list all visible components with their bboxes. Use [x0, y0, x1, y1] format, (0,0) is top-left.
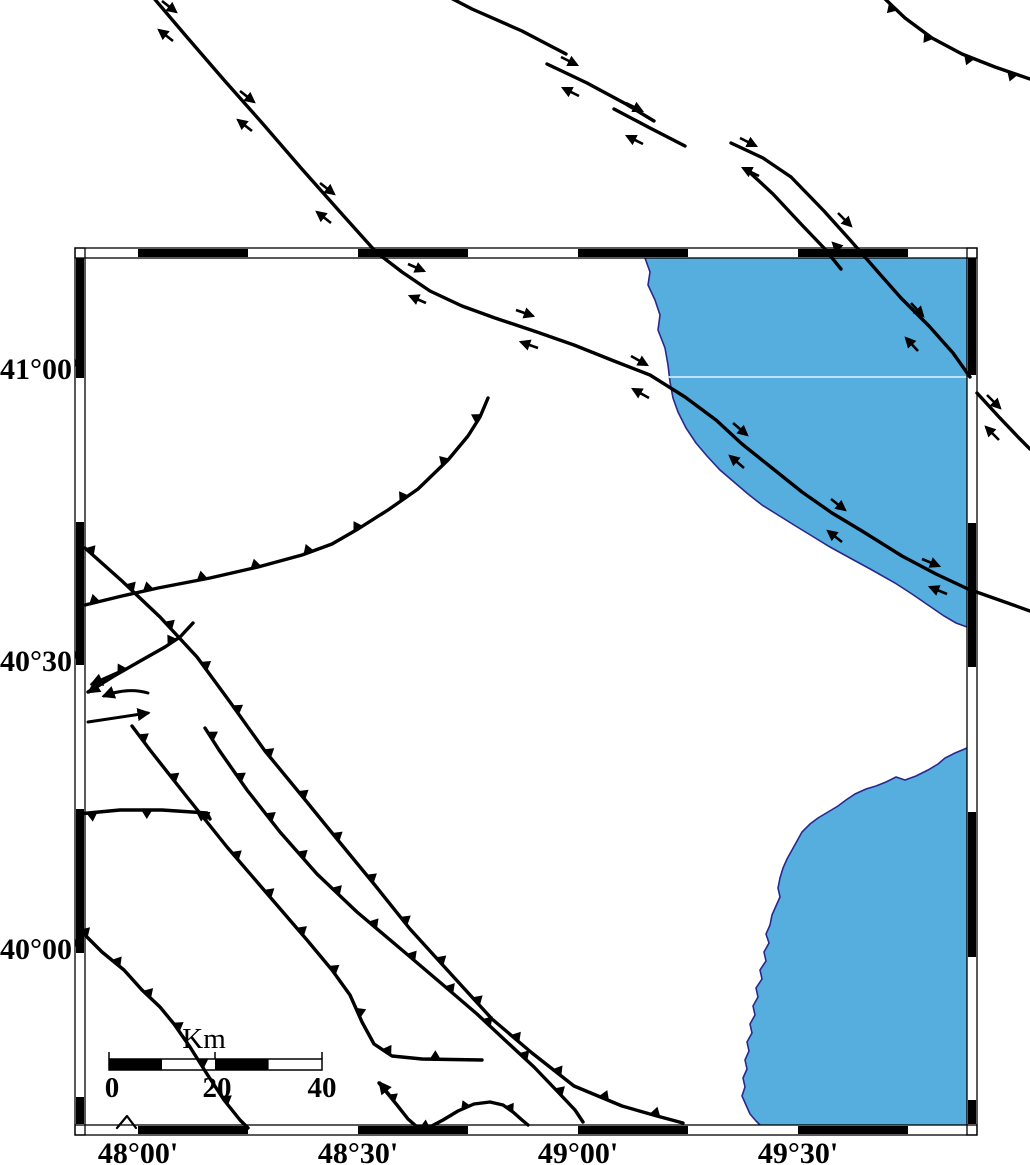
fault-thrust-long-west — [132, 726, 482, 1060]
thrust-tooth — [420, 1120, 430, 1128]
scale-bar-seg-0-10 — [109, 1059, 162, 1070]
thrust-tooth — [86, 812, 97, 821]
scale-bar-tick-40: 40 — [292, 1072, 352, 1104]
scale-bar-unit-label: Km — [159, 1023, 249, 1055]
lat-label-41-00: 41°00' — [0, 353, 68, 387]
fault-thrust-bottom-u-shape — [379, 1083, 528, 1128]
fault-strikeslip-segment-c — [614, 109, 685, 146]
thrust-tooth — [430, 1050, 441, 1059]
fault-stub-arrow-hook — [104, 691, 148, 696]
lon-label-48-00: 48°00' — [68, 1137, 208, 1165]
scale-bar-seg-20-30 — [215, 1059, 268, 1070]
scale-bar-tick-0: 0 — [82, 1072, 142, 1104]
fault-strikeslip-segment-d — [731, 143, 791, 177]
map-canvas — [0, 0, 1030, 1165]
fault-strikeslip-sea-short — [746, 169, 841, 269]
sea-layer — [645, 258, 967, 1125]
fault-thrust-curved-central — [85, 398, 488, 605]
lat-label-40-00: 40°00' — [0, 933, 68, 967]
fault-stub-arrow-b — [88, 713, 148, 722]
lon-label-49-00: 49°00' — [508, 1137, 648, 1165]
fault-strikeslip-segment-a — [447, 0, 566, 54]
fault-strikeslip-outside-right — [977, 393, 1030, 449]
lon-label-49-30: 49°30' — [728, 1137, 868, 1165]
fault-tick-bottom-frame — [117, 1116, 136, 1128]
map-figure: 41°00' 40°30' 40°00' 48°00' 48°30' 49°00… — [0, 0, 1030, 1165]
caspian-sea-lower — [742, 748, 967, 1125]
fault-strikeslip-segment-b — [547, 64, 654, 121]
scale-bar-tick-20: 20 — [187, 1072, 247, 1104]
fault-thrust-topright — [883, 0, 1030, 79]
thrust-tooth — [141, 810, 152, 819]
frame-right-bar — [967, 248, 977, 1135]
lon-label-48-30: 48°30' — [288, 1137, 428, 1165]
lat-label-40-30: 40°30' — [0, 645, 68, 679]
